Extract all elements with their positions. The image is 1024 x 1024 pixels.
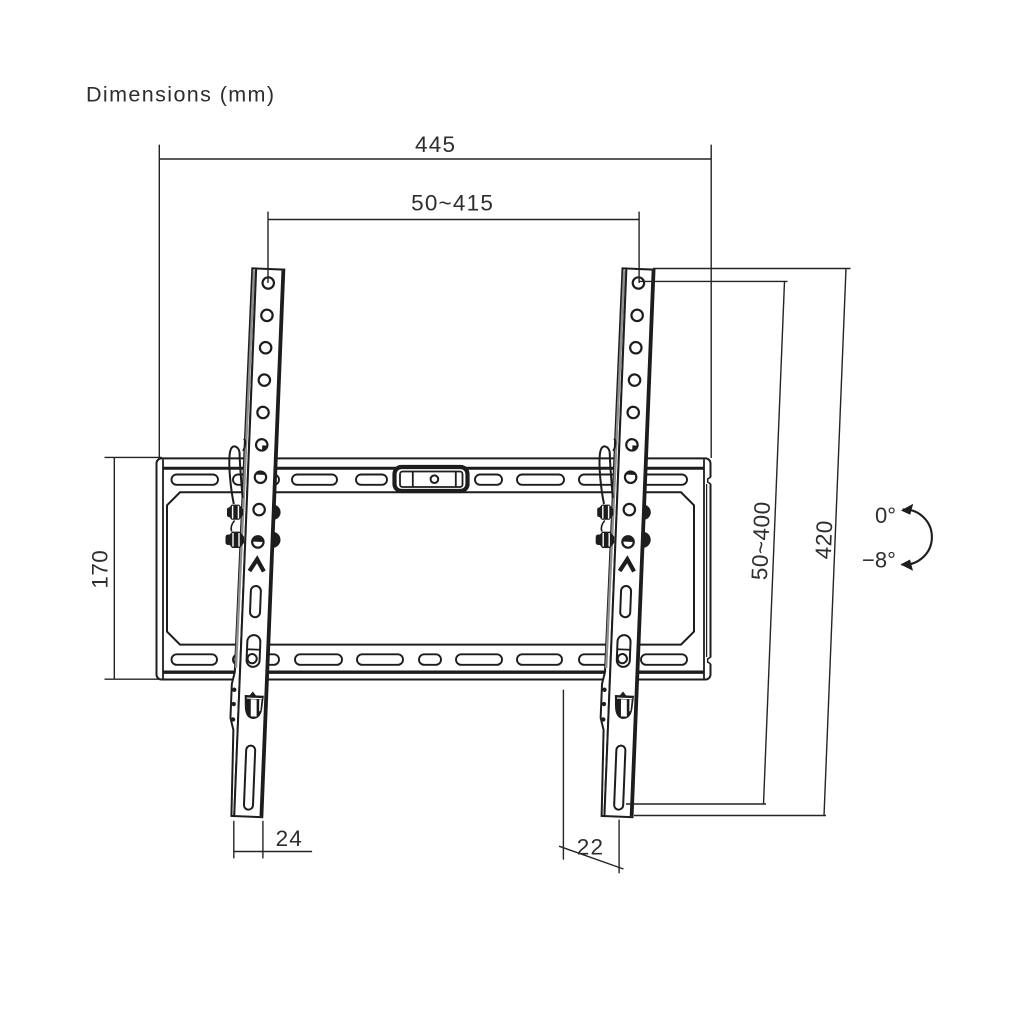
svg-text:50~400: 50~400 [747, 501, 775, 581]
svg-text:420: 420 [811, 520, 838, 560]
svg-text:170: 170 [87, 550, 112, 589]
svg-text:Dimensions (mm): Dimensions (mm) [86, 83, 275, 107]
svg-text:445: 445 [415, 132, 456, 157]
svg-text:24: 24 [276, 826, 303, 851]
svg-text:50~415: 50~415 [411, 190, 494, 215]
svg-text:0°: 0° [875, 503, 896, 528]
svg-text:22: 22 [577, 835, 604, 860]
svg-text:−8°: −8° [862, 548, 896, 573]
